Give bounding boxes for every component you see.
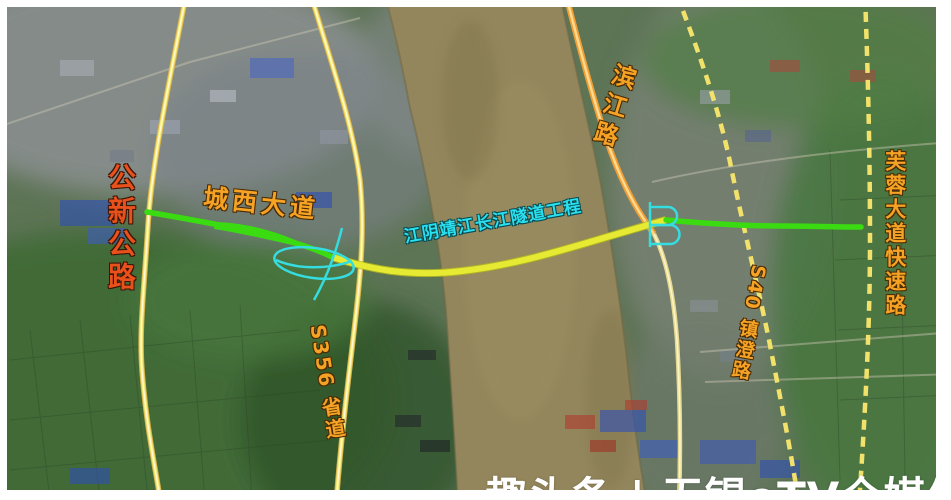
gongxin-road-label: 公新公路 — [104, 163, 137, 295]
furong-avenue-label: 芙蓉大道快速路 — [882, 150, 907, 318]
satellite-map: 公新公路 城西大道 江阴靖江长江隧道工程 滨江路 S356 省道 S40 镇澄路… — [7, 7, 936, 490]
screenshot-frame: 公新公路 城西大道 江阴靖江长江隧道工程 滨江路 S356 省道 S40 镇澄路… — [0, 0, 951, 500]
map-canvas: 公新公路 城西大道 江阴靖江长江隧道工程 滨江路 S356 省道 S40 镇澄路… — [7, 7, 936, 490]
watermark-text: 趣头条 | 无锡eTV全媒体 — [485, 464, 936, 490]
satellite-image — [7, 7, 936, 490]
